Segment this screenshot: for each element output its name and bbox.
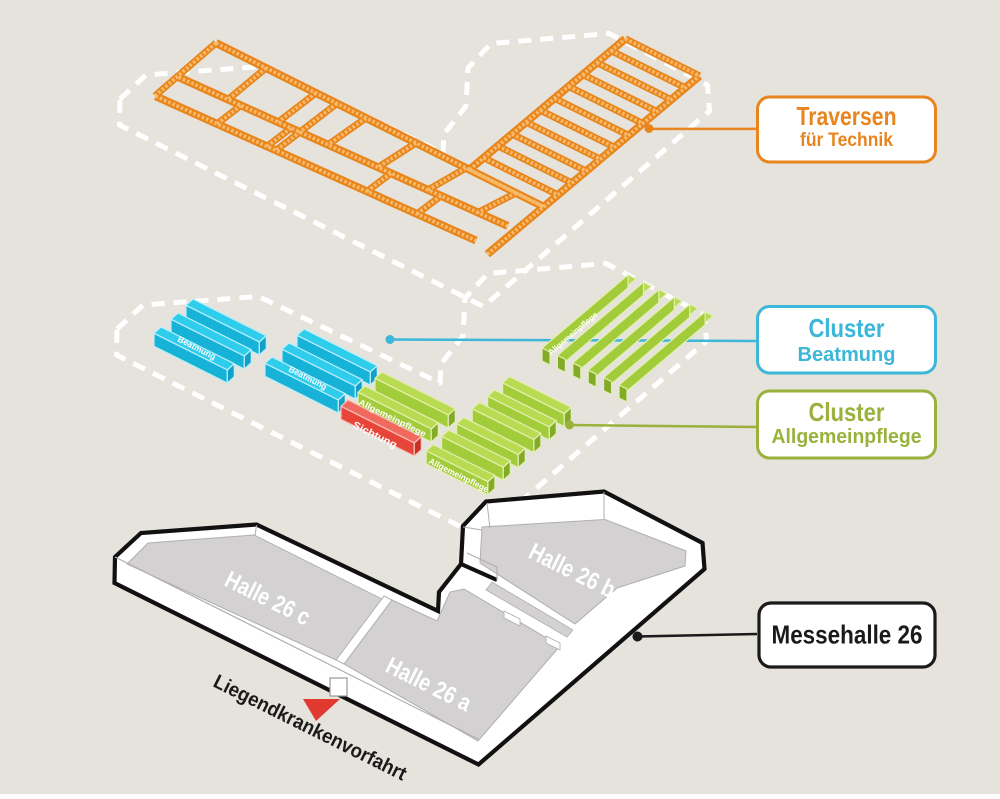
svg-text:für Technik: für Technik: [800, 130, 893, 151]
svg-text:Beatmung: Beatmung: [798, 344, 896, 366]
svg-text:Messehalle 26: Messehalle 26: [772, 620, 923, 650]
svg-text:Traversen: Traversen: [797, 101, 897, 131]
svg-text:Cluster: Cluster: [809, 313, 885, 343]
svg-text:Allgemeinpflege: Allgemeinpflege: [772, 426, 922, 448]
svg-text:Cluster: Cluster: [809, 397, 885, 427]
